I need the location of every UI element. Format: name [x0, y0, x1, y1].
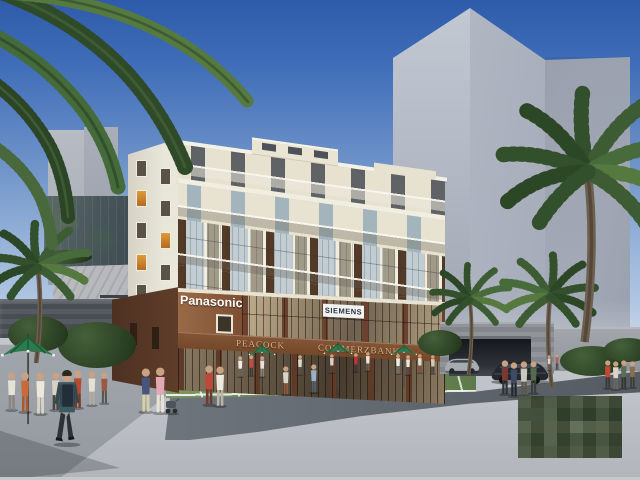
pedestrian — [296, 355, 304, 376]
siemens-sign: SIEMENS — [323, 304, 364, 319]
pedestrian — [546, 355, 552, 371]
pedestrian — [280, 366, 292, 396]
pedestrian — [212, 366, 228, 408]
architectural-rendering-scene: Panasonic SIEMENS PEACOCK COMMERZBANK — [0, 0, 640, 480]
watermark-mosaic — [518, 396, 622, 458]
pedestrian — [416, 354, 424, 374]
pedestrian — [328, 354, 336, 374]
pedestrian — [527, 361, 540, 395]
pedestrian — [236, 356, 244, 378]
pedestrian — [32, 372, 49, 416]
pedestrian — [394, 354, 402, 375]
pedestrian — [98, 372, 111, 405]
pedestrian — [404, 355, 412, 376]
pedestrian — [364, 352, 372, 372]
pedestrian — [247, 355, 255, 377]
pedestrian — [151, 367, 169, 415]
pedestrian-backpack-man — [48, 364, 86, 454]
pedestrian — [554, 354, 560, 370]
pedestrian — [352, 353, 360, 373]
palm-tree — [486, 70, 640, 359]
pedestrian — [258, 356, 266, 378]
pedestrian — [429, 355, 437, 375]
podium-small-window — [216, 314, 233, 334]
pedestrian — [308, 364, 320, 394]
pedestrian — [627, 361, 638, 389]
